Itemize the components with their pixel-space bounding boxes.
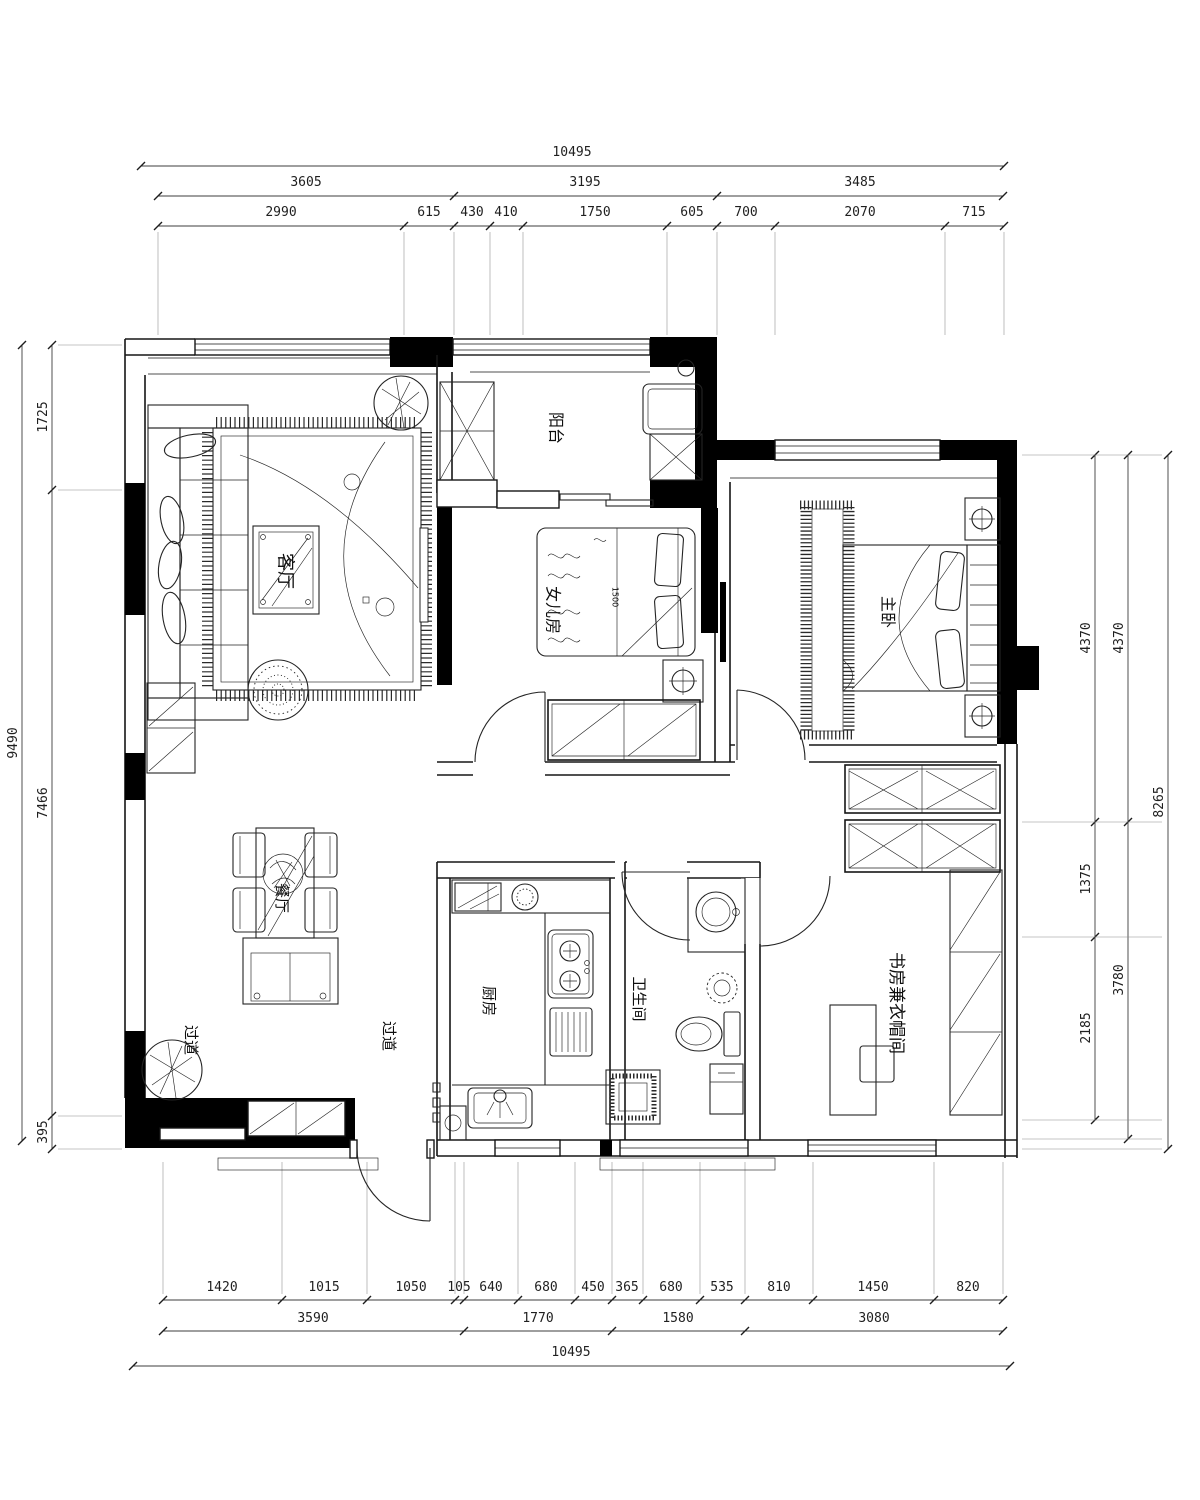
study-door[interactable]: [760, 876, 830, 946]
dim-text: 9490: [6, 727, 21, 758]
dim-text: 105: [447, 1280, 470, 1295]
stove: [548, 930, 593, 998]
desk[interactable]: [830, 1005, 876, 1115]
dim-text: 680: [659, 1280, 682, 1295]
shoe-cabinet: [248, 1101, 345, 1136]
bath-cabinet: [710, 1064, 743, 1114]
toilet-tank: [724, 1012, 740, 1056]
dim-text: 2990: [265, 205, 296, 220]
pillow: [935, 551, 965, 611]
master-bedroom: [720, 498, 1000, 737]
daughter-room-door[interactable]: [475, 692, 545, 762]
dim-text: 535: [710, 1280, 733, 1295]
room-label-dining: 餐厅: [273, 883, 291, 913]
kitchen-unit: [440, 1106, 466, 1140]
sofa-back: [148, 428, 180, 698]
room-label-corridor: 过道: [380, 1021, 398, 1051]
cooker-pot: [512, 884, 538, 910]
dim-text: 410: [494, 205, 517, 220]
wall-pier: [1017, 646, 1039, 690]
dim-text: 2185: [1079, 1012, 1094, 1043]
dining-chair[interactable]: [233, 888, 265, 932]
dim-text: 10495: [552, 145, 591, 160]
dim-text: 715: [962, 205, 985, 220]
dim-text: 1420: [206, 1280, 237, 1295]
room-label-daughter: 女儿房: [544, 586, 563, 634]
dim-text: 4370: [1079, 622, 1094, 653]
dim-text: 1015: [308, 1280, 339, 1295]
dim-text: 1375: [1079, 863, 1094, 894]
dim-text: 700: [734, 205, 757, 220]
dim-text: 680: [534, 1280, 557, 1295]
sofa-pillow: [159, 590, 190, 645]
window-balcony: [453, 339, 650, 355]
dim-text: 3605: [290, 175, 321, 190]
dim-text: 810: [767, 1280, 790, 1295]
room-label-kitchen: 厨房: [480, 986, 498, 1016]
dim-text: 3590: [297, 1311, 328, 1326]
bed-width-label: 1500: [611, 587, 620, 607]
window-master: [775, 440, 940, 460]
toilet: [676, 1017, 722, 1051]
dining-area: [142, 683, 338, 1100]
sofa-pillow: [156, 494, 187, 546]
pillow: [654, 533, 684, 587]
room-label-study: 书房兼衣帽间: [886, 952, 906, 1054]
balcony: [440, 360, 702, 480]
dimension-annotations: 10495 3605 3195 3485 2990 615 430 410 17…: [6, 145, 1172, 1370]
headboard: [967, 545, 1000, 691]
pillow: [654, 595, 684, 649]
bathroom: [606, 878, 745, 1124]
dim-text: 605: [680, 205, 703, 220]
step: [600, 1158, 775, 1170]
sideboard: [243, 938, 338, 1004]
floor-plan-page: 10495 3605 3195 3485 2990 615 430 410 17…: [0, 0, 1200, 1500]
room-label-balcony: 阳台: [547, 412, 566, 444]
wall-black: [390, 337, 453, 367]
wardrobe-row: [845, 765, 1000, 813]
entry-door[interactable]: [357, 1148, 430, 1221]
kitchen: [433, 880, 610, 1140]
living-rug: [213, 428, 421, 690]
shelving: [950, 870, 1002, 1115]
dim-text: 3195: [569, 175, 600, 190]
window-study: [808, 1140, 936, 1156]
dim-text: 365: [615, 1280, 638, 1295]
room-label-living: 客厅: [275, 553, 296, 589]
sofa-console: [148, 405, 248, 428]
dim-text: 450: [581, 1280, 604, 1295]
walls: [125, 337, 1039, 1221]
dining-chair[interactable]: [305, 888, 337, 932]
door-jamb: [350, 1140, 357, 1158]
dim-text: 395: [36, 1120, 51, 1143]
room-label-corridor: 过道: [182, 1025, 200, 1055]
window-living: [195, 339, 390, 355]
dining-chair[interactable]: [233, 833, 265, 877]
dim-text: 1725: [36, 401, 51, 432]
study-cloakroom: [830, 870, 1002, 1115]
tv-panel: [420, 528, 428, 622]
fur-rug: [812, 509, 843, 731]
room-label-master: 主卧: [879, 596, 898, 628]
daughter-room: [537, 528, 703, 760]
pillow: [935, 629, 965, 689]
dim-text: 1770: [522, 1311, 553, 1326]
bath-door[interactable]: [622, 872, 690, 940]
dim-text: 3080: [858, 1311, 889, 1326]
dim-text: 3780: [1112, 964, 1127, 995]
dim-text: 1450: [857, 1280, 888, 1295]
dim-text: 4370: [1112, 622, 1127, 653]
dim-text: 640: [479, 1280, 502, 1295]
dim-text: 1750: [579, 205, 610, 220]
dim-text: 615: [417, 205, 440, 220]
sliding-door-panel[interactable]: [606, 500, 653, 506]
tv-icon: [720, 582, 726, 662]
dim-text: 1050: [395, 1280, 426, 1295]
sofa-armrest: [148, 698, 248, 720]
dim-text: 8265: [1152, 786, 1167, 817]
floor-plan-svg: 10495 3605 3195 3485 2990 615 430 410 17…: [0, 0, 1200, 1500]
washing-machine: [643, 384, 702, 434]
entry-step: [218, 1158, 378, 1170]
room-label-bathroom: 卫生间: [630, 976, 648, 1021]
dim-text: 10495: [551, 1345, 590, 1360]
faucet-icon: [494, 1090, 506, 1102]
dim-text: 2070: [844, 205, 875, 220]
dim-text: 3485: [844, 175, 875, 190]
dim-text: 820: [956, 1280, 979, 1295]
dim-text: 430: [460, 205, 483, 220]
dim-text: 7466: [36, 787, 51, 818]
dim-text: 1580: [662, 1311, 693, 1326]
fan-icon: [707, 973, 737, 1003]
living-room: [148, 376, 428, 720]
sliding-door-panel[interactable]: [560, 494, 610, 500]
wardrobe-row: [845, 820, 1000, 872]
sofa-seat[interactable]: [180, 428, 248, 698]
